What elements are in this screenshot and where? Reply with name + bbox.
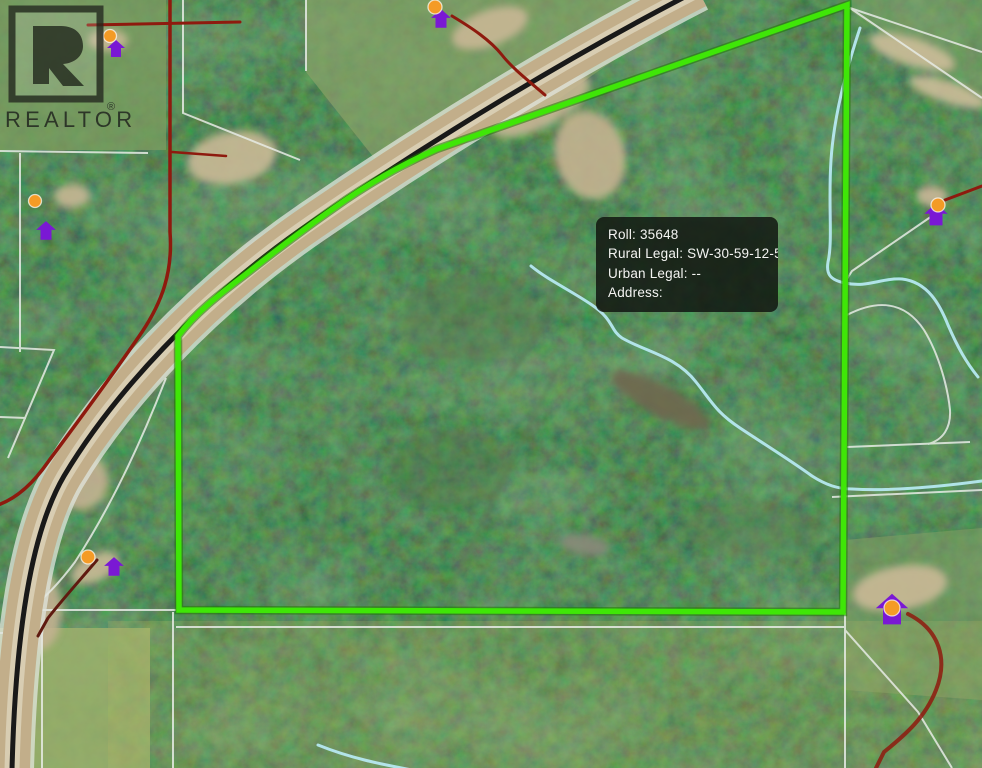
tooltip-roll-line: Roll: 35648 <box>608 225 766 244</box>
site-dot-icon <box>29 195 42 208</box>
site-dot-icon <box>104 30 117 43</box>
tooltip-rural-legal-line: Rural Legal: SW-30-59-12-5 <box>608 244 766 263</box>
site-dot-icon <box>428 0 442 14</box>
tooltip-address-line: Address: <box>608 283 766 302</box>
site-dot-icon <box>884 600 900 616</box>
map-viewport[interactable]: Roll: 35648 Rural Legal: SW-30-59-12-5 U… <box>0 0 982 768</box>
satellite-map[interactable] <box>0 0 982 768</box>
site-dot-icon <box>81 550 95 564</box>
parcel-info-tooltip: Roll: 35648 Rural Legal: SW-30-59-12-5 U… <box>596 217 778 312</box>
autumn-vegetation <box>150 628 982 768</box>
tooltip-urban-legal-line: Urban Legal: -- <box>608 264 766 283</box>
site-dot-icon <box>931 198 945 212</box>
